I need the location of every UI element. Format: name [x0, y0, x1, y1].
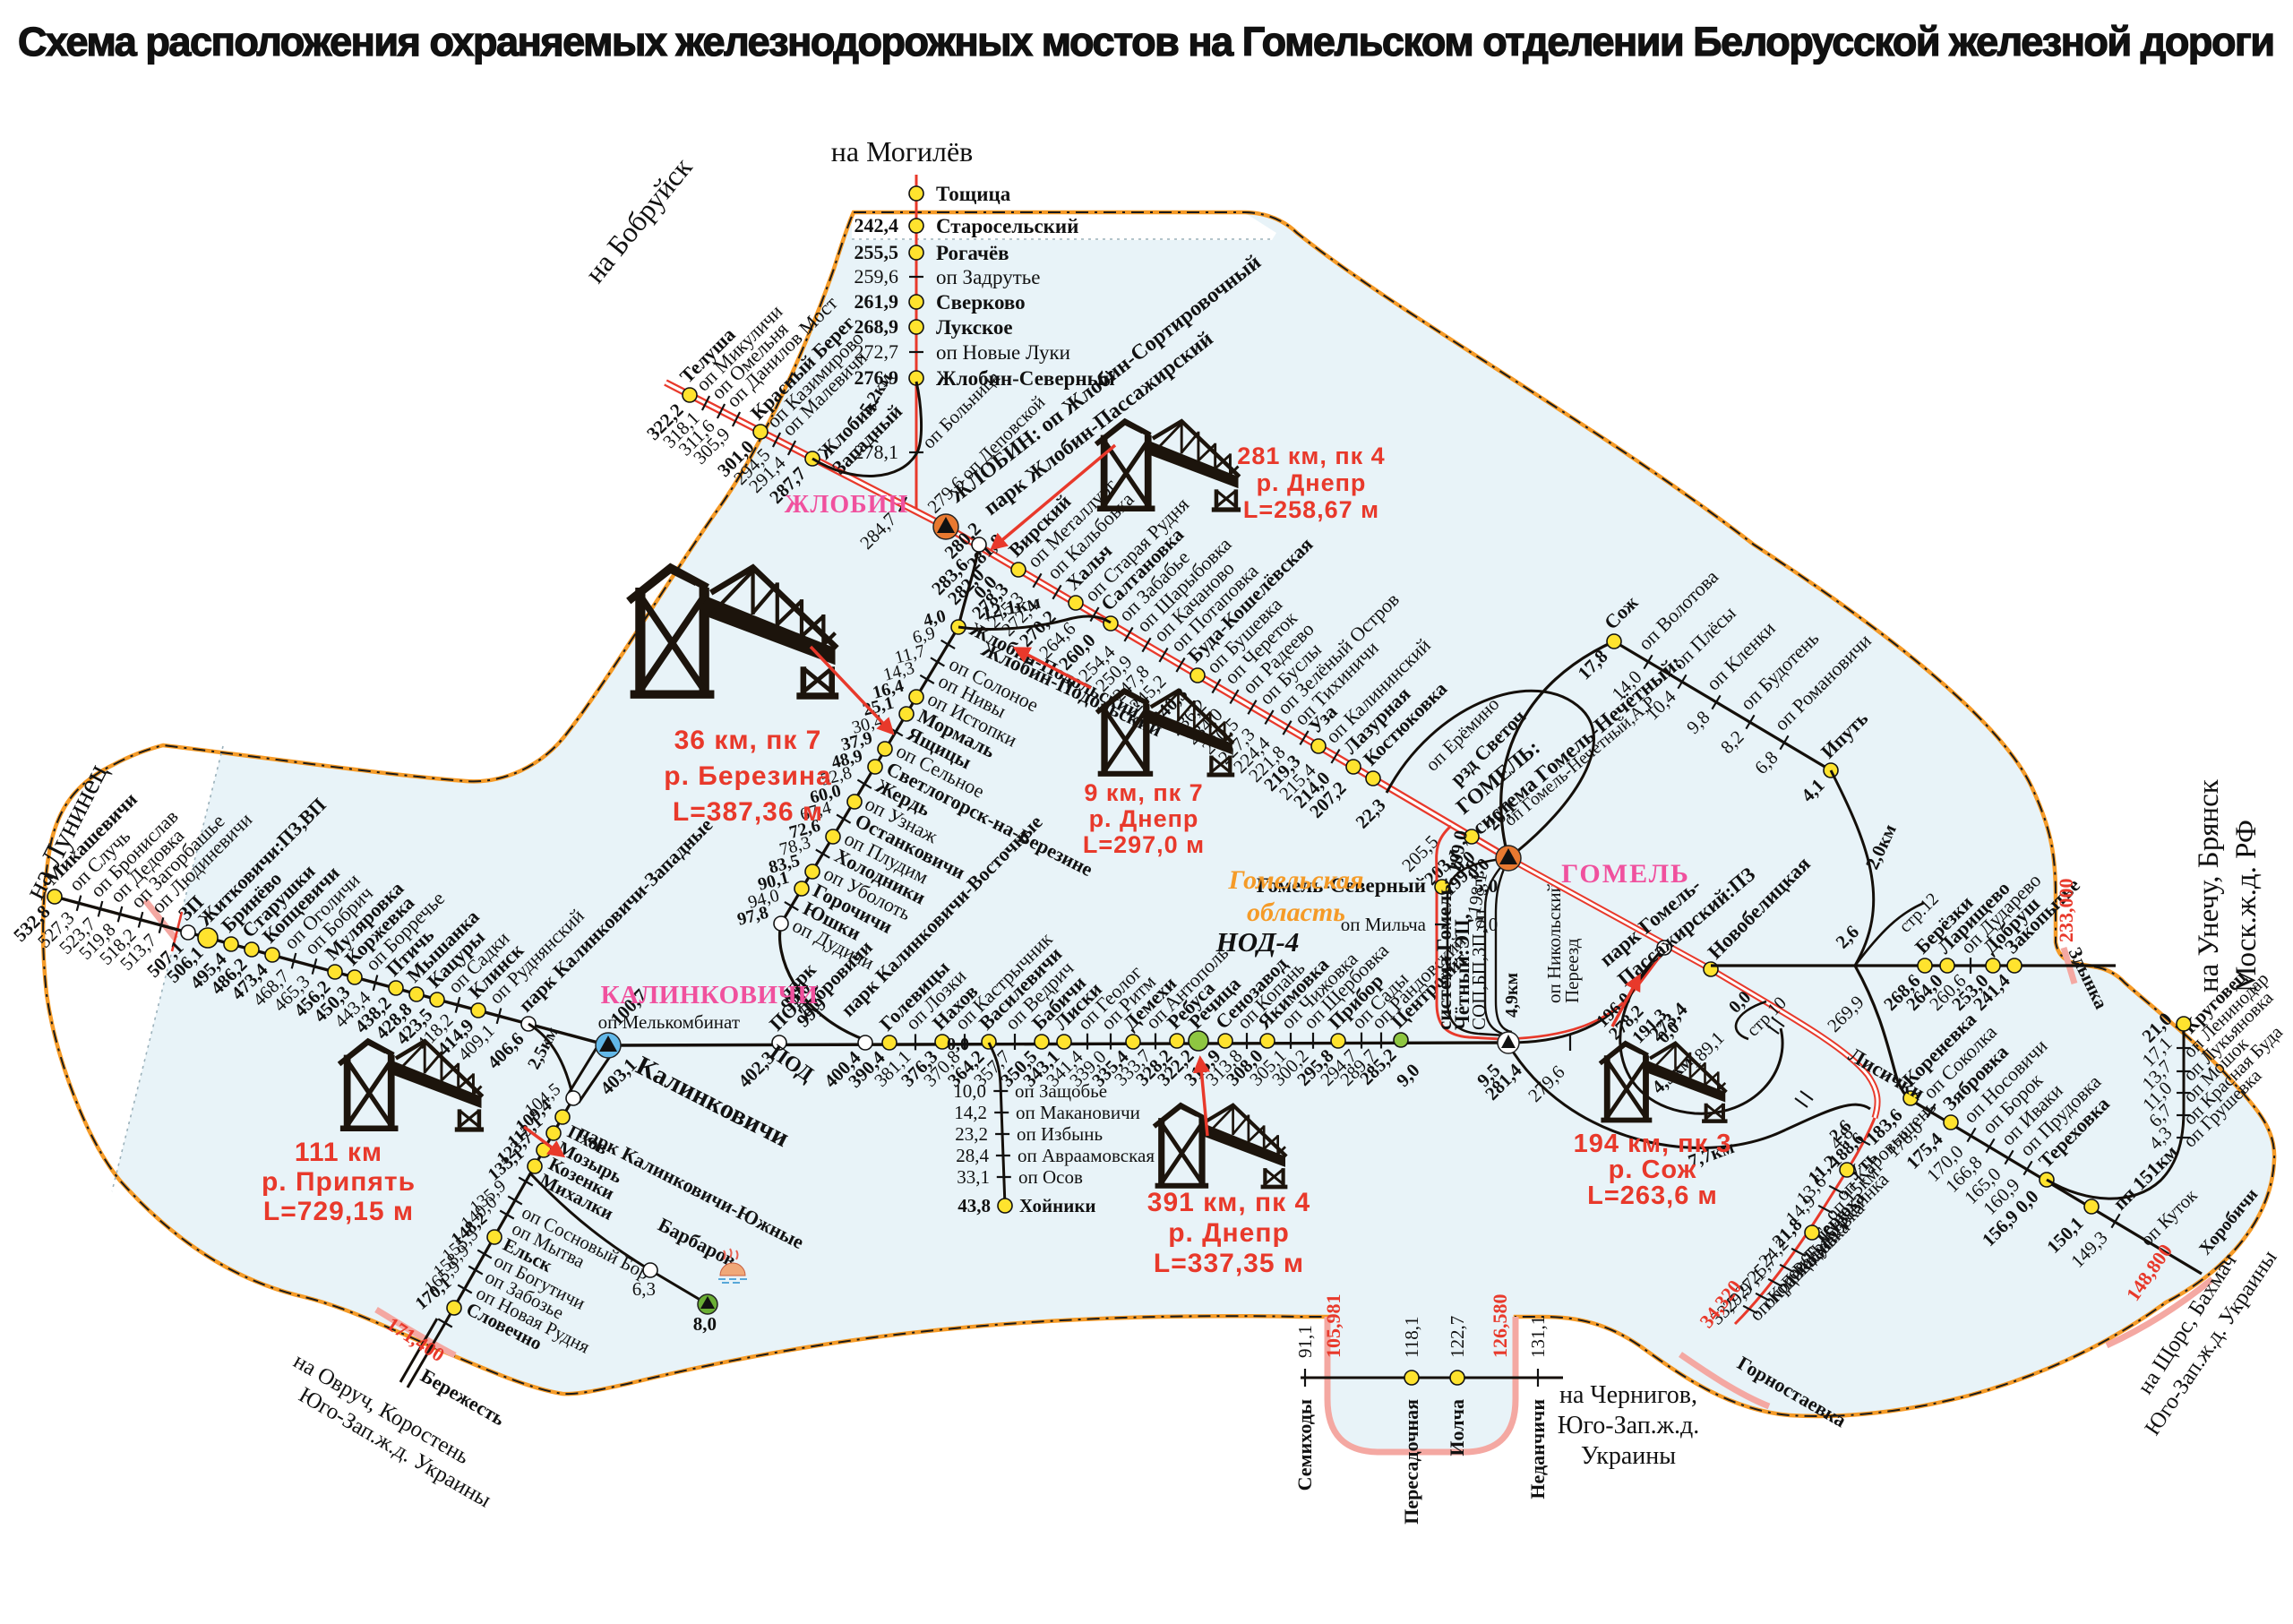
- svg-text:8,0: 8,0: [693, 1313, 717, 1335]
- svg-text:6,3: 6,3: [632, 1278, 656, 1300]
- svg-text:на Чернигов,: на Чернигов,: [1559, 1381, 1697, 1409]
- svg-text:L=337,35 м: L=337,35 м: [1154, 1249, 1304, 1278]
- svg-text:Неданчичи: Неданчичи: [1526, 1399, 1549, 1499]
- svg-text:р. Березина: р. Березина: [664, 761, 831, 791]
- svg-text:СОП,БП,ЗП,оп: СОП,БП,ЗП,оп: [1468, 909, 1490, 1030]
- svg-text:Сверково: Сверково: [936, 291, 1026, 314]
- svg-text:Семиходы: Семиходы: [1293, 1399, 1316, 1491]
- svg-text:Украины: Украины: [1581, 1442, 1676, 1470]
- svg-text:10,0: 10,0: [953, 1080, 986, 1102]
- svg-text:43,8: 43,8: [958, 1195, 991, 1216]
- svg-text:28,4: 28,4: [956, 1145, 989, 1166]
- svg-text:КАЛИНКОВИЧИ: КАЛИНКОВИЧИ: [601, 981, 819, 1010]
- svg-text:Пересадочная: Пересадочная: [1400, 1399, 1422, 1525]
- svg-text:118,1: 118,1: [1401, 1317, 1422, 1358]
- svg-text:233,000: 233,000: [2055, 879, 2077, 943]
- svg-text:9 км, пк 7: 9 км, пк 7: [1084, 779, 1203, 806]
- svg-text:р. Днепр: р. Днепр: [1168, 1218, 1290, 1248]
- svg-text:Хойники: Хойники: [1019, 1195, 1096, 1216]
- svg-text:Лукское: Лукское: [936, 316, 1013, 339]
- svg-text:р. Припять: р. Припять: [262, 1167, 416, 1197]
- svg-text:Юго-Зап.ж.д.: Юго-Зап.ж.д.: [1558, 1412, 1700, 1439]
- svg-text:оп Защобье: оп Защобье: [1015, 1080, 1107, 1102]
- svg-text:91,1: 91,1: [1294, 1325, 1316, 1358]
- svg-text:105,981: 105,981: [1322, 1294, 1344, 1359]
- svg-text:33,1: 33,1: [957, 1166, 990, 1188]
- svg-text:242,4: 242,4: [855, 214, 899, 236]
- svg-text:255,5: 255,5: [855, 241, 899, 263]
- svg-text:р. Сож: р. Сож: [1609, 1156, 1697, 1184]
- svg-text:Рогачёв: Рогачёв: [936, 242, 1009, 264]
- svg-text:131,1: 131,1: [1527, 1316, 1549, 1358]
- svg-text:122,7: 122,7: [1447, 1316, 1468, 1358]
- svg-text:оп Новые Луки: оп Новые Луки: [936, 341, 1070, 364]
- svg-text:23,2: 23,2: [955, 1123, 988, 1145]
- svg-text:оп Мильча: оп Мильча: [1341, 914, 1427, 935]
- svg-text:194 км, пк 3: 194 км, пк 3: [1574, 1130, 1732, 1158]
- svg-text:391 км, пк 4: 391 км, пк 4: [1147, 1188, 1310, 1217]
- svg-text:Схема расположения охраняемых: Схема расположения охраняемых железнодор…: [18, 19, 2275, 64]
- svg-text:4,9км: 4,9км: [1502, 973, 1522, 1018]
- svg-text:область: область: [1247, 898, 1345, 927]
- svg-text:оп Макановичи: оп Макановичи: [1016, 1102, 1140, 1123]
- svg-text:ГОМЕЛЬ: ГОМЕЛЬ: [1561, 859, 1690, 889]
- svg-text:Тощица: Тощица: [936, 183, 1011, 205]
- svg-text:на Унечу, Брянск: на Унечу, Брянск: [2193, 778, 2225, 992]
- svg-text:268,9: 268,9: [855, 315, 899, 338]
- svg-text:Иолча: Иолча: [1446, 1399, 1468, 1456]
- svg-text:259,6: 259,6: [855, 265, 899, 288]
- svg-text:НОД-4: НОД-4: [1215, 926, 1300, 958]
- svg-text:L=263,6 м: L=263,6 м: [1587, 1181, 1718, 1210]
- svg-text:Гомельская: Гомельская: [1228, 865, 1364, 895]
- svg-text:р. Днепр: р. Днепр: [1089, 805, 1199, 832]
- svg-text:111 км: 111 км: [295, 1138, 382, 1167]
- svg-text:L=297,0 м: L=297,0 м: [1083, 831, 1205, 858]
- svg-text:оп Осов: оп Осов: [1018, 1166, 1083, 1188]
- svg-text:L=258,67 м: L=258,67 м: [1243, 496, 1379, 523]
- svg-text:0,0: 0,0: [947, 1035, 969, 1054]
- svg-text:ЖЛОБИН: ЖЛОБИН: [785, 491, 908, 519]
- svg-text:L=387,36 м: L=387,36 м: [673, 797, 823, 827]
- svg-text:оп Авраамовская: оп Авраамовская: [1018, 1145, 1155, 1166]
- svg-text:36 км, пк 7: 36 км, пк 7: [674, 726, 822, 755]
- svg-text:L=729,15 м: L=729,15 м: [263, 1197, 414, 1226]
- svg-text:оп Задрутье: оп Задрутье: [936, 266, 1040, 288]
- svg-text:Переезд: Переезд: [1561, 938, 1583, 1003]
- svg-text:261,9: 261,9: [855, 290, 899, 313]
- svg-text:на Могилёв: на Могилёв: [831, 135, 974, 168]
- svg-text:281 км, пк 4: 281 км, пк 4: [1237, 443, 1385, 469]
- svg-text:Старосельский: Старосельский: [936, 215, 1078, 237]
- svg-text:оп Избынь: оп Избынь: [1017, 1123, 1103, 1145]
- svg-text:126,580: 126,580: [1489, 1294, 1511, 1359]
- svg-text:р. Днепр: р. Днепр: [1257, 469, 1367, 496]
- svg-text:14,2: 14,2: [954, 1102, 987, 1123]
